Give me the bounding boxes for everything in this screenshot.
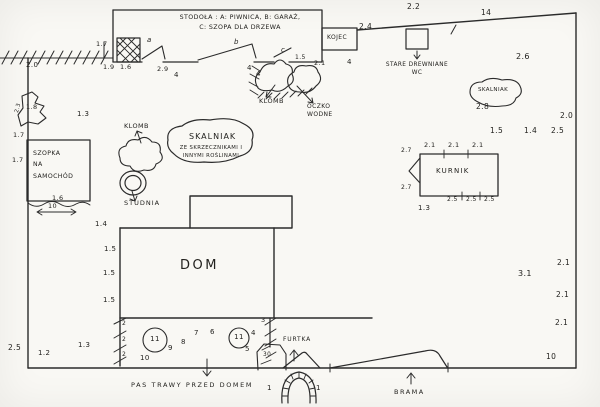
szopka-label: SZOPKA NA SAMOCHÓD [33, 148, 73, 182]
dim-10-right: 10 [546, 352, 556, 362]
num-1-arch-left: 1 [267, 384, 272, 393]
num-7: 7 [194, 329, 199, 338]
skalniak-center-sub: ZE SKRZECZNIKAMI I INNYMI ROŚLINAMI [176, 145, 246, 161]
kurnik-label: KURNIK [436, 167, 469, 176]
num-9: 9 [168, 344, 173, 353]
dim-21-r1: 2.1 [557, 258, 570, 268]
dim-2-p1: 2 [122, 320, 126, 328]
dim-18: 1.8 [26, 103, 38, 112]
dim-28: 2.8 [476, 102, 489, 112]
dim-15-dom2: 1.5 [103, 269, 115, 278]
dim-21-oczko: 2.1 [314, 59, 326, 68]
dim-13-bl: 1.3 [78, 341, 90, 350]
dim-21-k1: 2.1 [424, 141, 436, 150]
stodola-title: STODOŁA : A: PIWNICA, B: GARAŻ, C: SZOPA… [160, 13, 320, 33]
oczko-wodne-label: OCZKO WODNE [307, 103, 333, 120]
dim-4-a: 4 [174, 71, 179, 80]
dim-14-right: 1.4 [524, 126, 537, 136]
dim-10-szopka: 10 [48, 202, 57, 211]
dim-17-top: 1.7 [96, 40, 108, 49]
dim-2-p2: 2 [122, 336, 126, 344]
num-3: 3 [261, 316, 266, 325]
dim-4-b: 4 [256, 70, 261, 79]
dim-25-k2: 2.5 [466, 196, 477, 204]
dim-19: 1.9 [103, 63, 115, 72]
dim-2-p3: 2 [122, 351, 126, 359]
dim-4-d: 4 [347, 58, 352, 67]
kojec-label: KOJEC [327, 34, 347, 42]
dim-20-right: 2.0 [560, 111, 573, 121]
dim-25-bl: 2.5 [8, 343, 21, 353]
section-letter-c: c [281, 46, 285, 55]
dim-15-dom3: 1.5 [103, 296, 115, 305]
plan-labels: STODOŁA : A: PIWNICA, B: GARAŻ, C: SZOPA… [0, 0, 600, 407]
dim-16-top: 1.6 [120, 63, 132, 72]
dim-31: 3.1 [518, 269, 532, 280]
dim-25-right: 2.5 [551, 126, 564, 136]
dim-21-r2: 2.1 [556, 290, 569, 300]
dim-25-k3: 2.5 [484, 196, 495, 204]
dim-21-r3: 2.1 [555, 318, 568, 328]
dim-20-left: 2.0 [26, 61, 38, 70]
furtka-label: FURTKA [283, 336, 311, 344]
dim-22: 2.2 [407, 2, 420, 12]
klomb-center-label: KLOMB [124, 122, 149, 131]
studnia-label: STUDNIA [124, 199, 160, 208]
dim-27-k2: 2.7 [401, 184, 412, 192]
hand-drawn-site-plan: STODOŁA : A: PIWNICA, B: GARAŻ, C: SZOPA… [0, 0, 600, 407]
dim-15-dom1: 1.5 [104, 245, 116, 254]
skalniak-right-label: SKALNIAK [478, 87, 508, 94]
num-6: 6 [210, 328, 215, 337]
dim-13-left: 1.3 [77, 110, 89, 119]
dim-13-kurnik: 1.3 [418, 204, 430, 213]
dom-label: DOM [180, 257, 219, 275]
dim-25-k1: 2.5 [447, 196, 458, 204]
klomb-top-label: KLOMB [259, 97, 284, 106]
dim-23: 2.3 [14, 102, 24, 114]
dim-29: 2.9 [157, 65, 169, 74]
dim-15-right: 1.5 [490, 126, 503, 136]
num-8: 8 [181, 338, 186, 347]
dim-26: 2.6 [516, 52, 530, 63]
dim-17-left-a: 1.7 [13, 131, 25, 140]
dim-15-oczko: 1.5 [295, 54, 306, 62]
wc-label: STARE DREWNIANE WC [379, 61, 455, 77]
dim-14-top: 14 [481, 8, 491, 18]
dim-4-c: 4 [247, 64, 252, 73]
section-letter-a: a [147, 36, 152, 45]
num-1-arch-right: 1 [316, 384, 321, 393]
dim-21-k3: 2.1 [472, 141, 484, 150]
skalniak-center-title: SKALNIAK [189, 132, 236, 143]
section-letter-b: b [234, 38, 239, 47]
dim-27-k1: 2.7 [401, 147, 412, 155]
brama-label: BRAMA [394, 388, 425, 397]
num-10-porch: 10 [140, 354, 150, 363]
dim-17-left-b: 1.7 [12, 156, 24, 165]
dim-21-k2: 2.1 [448, 141, 460, 150]
num-5: 5 [245, 345, 250, 354]
num-4: 4 [251, 329, 256, 338]
num-11-b: 11 [231, 333, 247, 342]
pas-trawy-label: PAS TRAWY PRZED DOMEM [131, 381, 253, 390]
dim-24: 2.4 [359, 22, 372, 32]
dim-14-dom: 1.4 [95, 220, 107, 229]
dim-12-bl: 1.2 [38, 349, 50, 358]
num-30: 30 [263, 352, 271, 360]
num-11-a: 11 [147, 335, 163, 344]
